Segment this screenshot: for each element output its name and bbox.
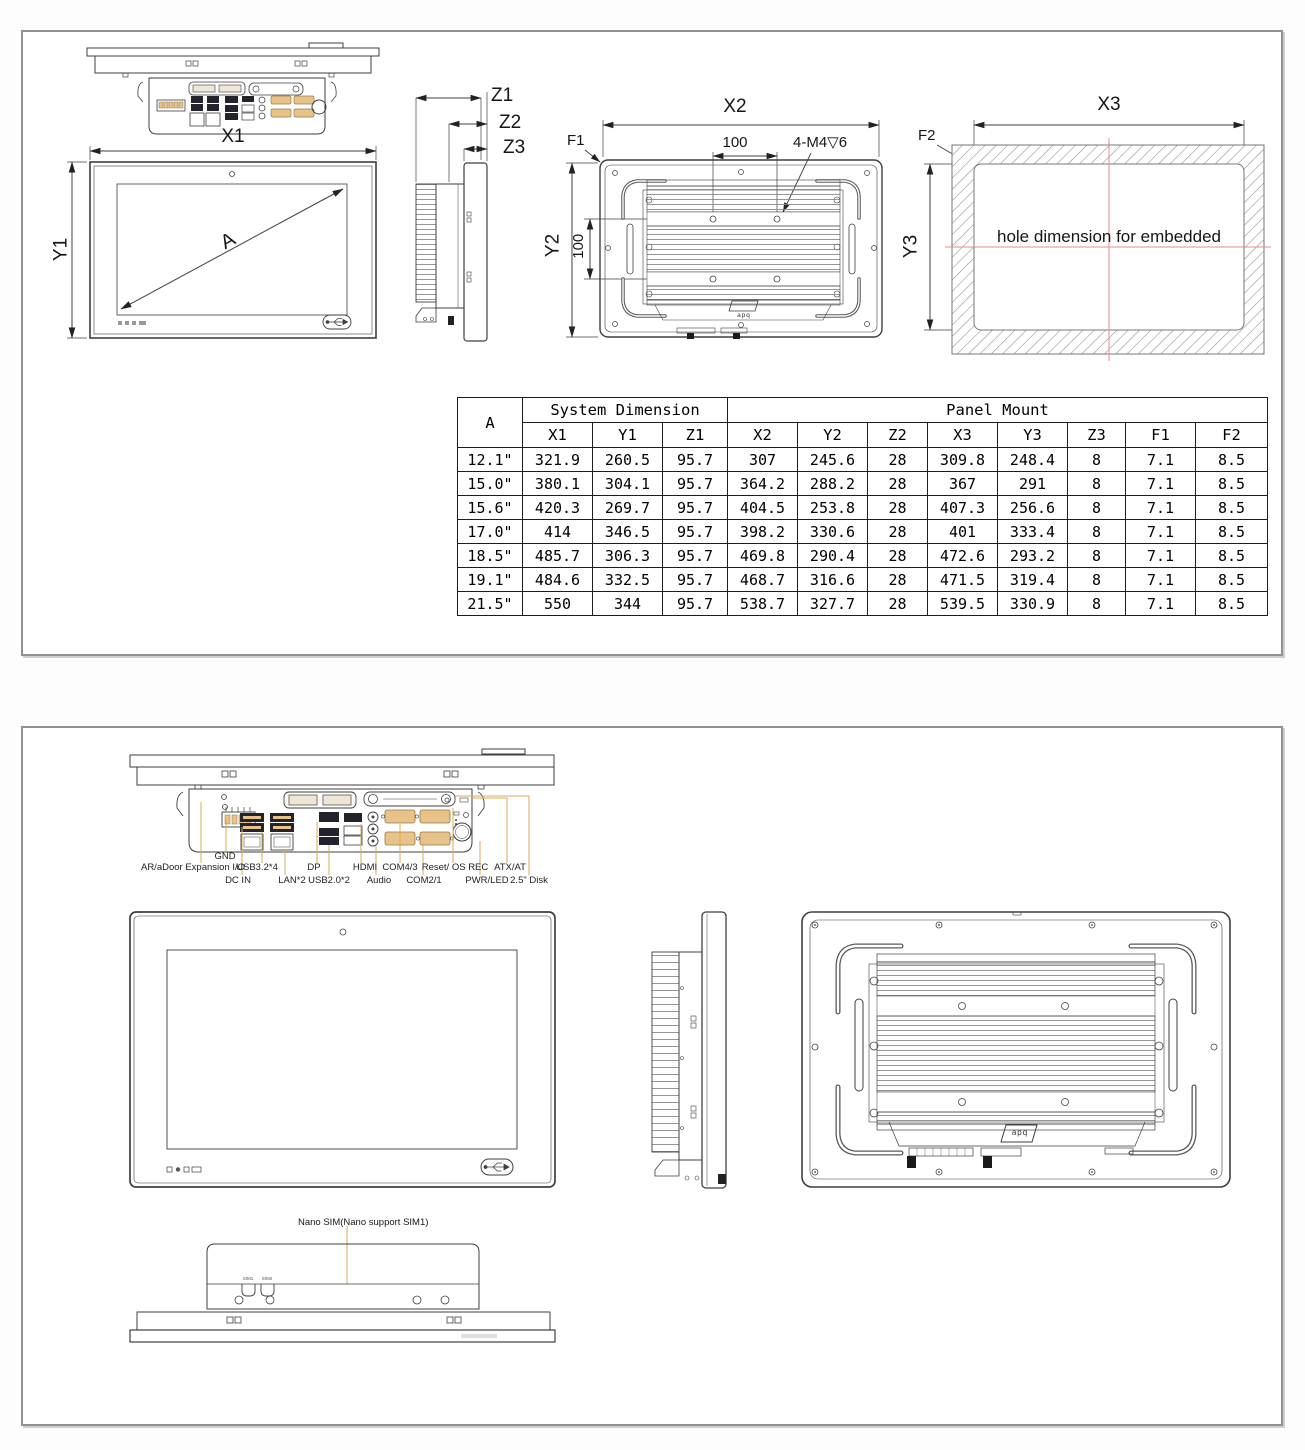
table-cell: 8 <box>1068 544 1126 568</box>
table-cell: 7.1 <box>1126 520 1196 544</box>
table-cell: 248.4 <box>998 448 1068 472</box>
table-cell: 95.7 <box>663 496 728 520</box>
col-x1: X1 <box>523 423 593 448</box>
table-cell: 95.7 <box>663 448 728 472</box>
io-label-gnd: GND <box>214 852 235 862</box>
table-cell: 485.7 <box>523 544 593 568</box>
table-cell: 364.2 <box>728 472 798 496</box>
table-cell: 333.4 <box>998 520 1068 544</box>
dimension-table-body: 12.1"321.9260.595.7307245.628309.8248.48… <box>458 448 1268 616</box>
table-cell: 28 <box>868 520 928 544</box>
table-cell: 28 <box>868 592 928 616</box>
rear-view-dimensioned <box>566 120 882 339</box>
table-cell: 321.9 <box>523 448 593 472</box>
sheet2-linework <box>23 728 1281 1424</box>
table-cell: 8 <box>1068 568 1126 592</box>
table-cell: 469.8 <box>728 544 798 568</box>
io-label-lan: LAN*2 <box>278 876 305 886</box>
io-label-com43: COM4/3 <box>382 863 417 873</box>
table-cell: 8 <box>1068 592 1126 616</box>
table-row: 12.1"321.9260.595.7307245.628309.8248.48… <box>458 448 1268 472</box>
table-cell: 332.5 <box>593 568 663 592</box>
table-cell: 17.0" <box>458 520 523 544</box>
table-cell: 316.6 <box>798 568 868 592</box>
table-cell: 306.3 <box>593 544 663 568</box>
table-cell: 468.7 <box>728 568 798 592</box>
dim-label-x2: X2 <box>710 97 760 118</box>
cutout-note: hole dimension for embedded <box>969 228 1249 247</box>
io-label-pwr: PWR/LED <box>465 876 508 886</box>
table-cell: 367 <box>928 472 998 496</box>
io-label-usb32: USB3.2*4 <box>236 863 278 873</box>
io-label-hdmi: HDMI <box>353 863 377 873</box>
usb-icon <box>484 1163 509 1171</box>
io-label-atx: ATX/AT <box>494 863 526 873</box>
table-cell: 256.6 <box>998 496 1068 520</box>
table-cell: 245.6 <box>798 448 868 472</box>
table-cell: 8.5 <box>1196 592 1268 616</box>
dim-label-vesa-h: 100 <box>710 135 760 152</box>
corner-note-f1: F1 <box>567 133 585 150</box>
dim-label-y2: Y2 <box>544 225 565 265</box>
io-label-dp: DP <box>307 863 320 873</box>
table-cell: 7.1 <box>1126 496 1196 520</box>
side-view-dimensioned <box>416 92 487 341</box>
table-cell: 288.2 <box>798 472 868 496</box>
nano-sim-note: Nano SIM(Nano support SIM1) <box>298 1218 428 1228</box>
table-cell: 8.5 <box>1196 568 1268 592</box>
table-cell: 15.6" <box>458 496 523 520</box>
table-cell: 28 <box>868 544 928 568</box>
usb-icon <box>326 319 347 326</box>
col-z2: Z2 <box>868 423 928 448</box>
table-cell: 95.7 <box>663 544 728 568</box>
table-cell: 7.1 <box>1126 592 1196 616</box>
table-cell: 380.1 <box>523 472 593 496</box>
table-cell: 8 <box>1068 520 1126 544</box>
table-cell: 7.1 <box>1126 472 1196 496</box>
table-cell: 21.5" <box>458 592 523 616</box>
table-cell: 290.4 <box>798 544 868 568</box>
table-header-system: System Dimension <box>523 398 728 423</box>
corner-note-f2: F2 <box>918 128 936 145</box>
table-cell: 346.5 <box>593 520 663 544</box>
table-cell: 95.7 <box>663 520 728 544</box>
table-cell: 472.6 <box>928 544 998 568</box>
table-row: 17.0"414346.595.7398.2330.628401333.487.… <box>458 520 1268 544</box>
drawing-page: { "brand_logo": "apq", "sheet1": { "fron… <box>0 0 1305 1450</box>
table-cell: 291 <box>998 472 1068 496</box>
table-cell: 8.5 <box>1196 472 1268 496</box>
col-f2: F2 <box>1196 423 1268 448</box>
table-cell: 95.7 <box>663 592 728 616</box>
table-cell: 330.6 <box>798 520 868 544</box>
col-z1: Z1 <box>663 423 728 448</box>
table-cell: 484.6 <box>523 568 593 592</box>
sim2-label: SIM2 <box>262 1277 273 1282</box>
io-label-audio: Audio <box>367 876 391 886</box>
sheet-dimensions: X1 Y1 A Z1 Z2 Z3 X2 100 4-M4▽6 F1 Y2 100… <box>21 30 1283 656</box>
table-cell: 7.1 <box>1126 568 1196 592</box>
table-cell: 398.2 <box>728 520 798 544</box>
col-y3: Y3 <box>998 423 1068 448</box>
table-cell: 539.5 <box>928 592 998 616</box>
io-label-com21: COM2/1 <box>406 876 441 886</box>
sheet-io-views: GND AR/aDoor Expansion I/O USB3.2*4 DP H… <box>21 726 1283 1426</box>
table-cell: 18.5" <box>458 544 523 568</box>
col-f1: F1 <box>1126 423 1196 448</box>
io-label-expansion: AR/aDoor Expansion I/O <box>141 863 245 873</box>
table-cell: 293.2 <box>998 544 1068 568</box>
table-cell: 327.7 <box>798 592 868 616</box>
dim-label-z1: Z1 <box>491 86 513 107</box>
table-row: 21.5"55034495.7538.7327.728539.5330.987.… <box>458 592 1268 616</box>
rear-view-large <box>802 912 1230 1187</box>
table-cell: 344 <box>593 592 663 616</box>
table-cell: 260.5 <box>593 448 663 472</box>
table-cell: 330.9 <box>998 592 1068 616</box>
sim1-label: SIM1 <box>243 1277 254 1282</box>
table-cell: 538.7 <box>728 592 798 616</box>
col-x2: X2 <box>728 423 798 448</box>
table-cell: 8.5 <box>1196 544 1268 568</box>
io-label-disk: 2.5" Disk <box>510 876 548 886</box>
table-cell: 8 <box>1068 496 1126 520</box>
table-cell: 15.0" <box>458 472 523 496</box>
table-cell: 12.1" <box>458 448 523 472</box>
table-row: 19.1"484.6332.595.7468.7316.628471.5319.… <box>458 568 1268 592</box>
table-row: 18.5"485.7306.395.7469.8290.428472.6293.… <box>458 544 1268 568</box>
dim-label-y1: Y1 <box>52 229 73 269</box>
table-cell: 28 <box>868 472 928 496</box>
table-cell: 407.3 <box>928 496 998 520</box>
table-cell: 550 <box>523 592 593 616</box>
table-header-panel: Panel Mount <box>728 398 1268 423</box>
bottom-view <box>130 1244 555 1342</box>
table-header-size: A <box>458 398 523 448</box>
side-view-large <box>652 912 726 1188</box>
dim-label-y3: Y3 <box>902 226 923 266</box>
col-y1: Y1 <box>593 423 663 448</box>
table-row: 15.6"420.3269.795.7404.5253.828407.3256.… <box>458 496 1268 520</box>
table-cell: 28 <box>868 496 928 520</box>
table-cell: 304.1 <box>593 472 663 496</box>
dimension-table: A System Dimension Panel Mount X1 Y1 Z1 … <box>457 397 1268 616</box>
table-cell: 28 <box>868 448 928 472</box>
table-cell: 404.5 <box>728 496 798 520</box>
table-cell: 7.1 <box>1126 448 1196 472</box>
col-x3: X3 <box>928 423 998 448</box>
dim-label-z2: Z2 <box>499 113 521 134</box>
io-label-usb20: USB2.0*2 <box>308 876 350 886</box>
dim-label-x3: X3 <box>1084 95 1134 116</box>
table-cell: 414 <box>523 520 593 544</box>
table-cell: 8 <box>1068 472 1126 496</box>
table-cell: 8.5 <box>1196 520 1268 544</box>
table-cell: 253.8 <box>798 496 868 520</box>
table-cell: 420.3 <box>523 496 593 520</box>
dim-label-x1: X1 <box>208 127 258 148</box>
top-io-view-small <box>87 43 379 134</box>
table-cell: 95.7 <box>663 568 728 592</box>
io-label-dcin: DC IN <box>225 876 251 886</box>
table-cell: 401 <box>928 520 998 544</box>
top-io-view-large <box>130 749 554 875</box>
table-cell: 8.5 <box>1196 448 1268 472</box>
table-cell: 8 <box>1068 448 1126 472</box>
screw-thread-note: 4-M4▽6 <box>793 135 847 152</box>
col-z3: Z3 <box>1068 423 1126 448</box>
table-cell: 8.5 <box>1196 496 1268 520</box>
table-cell: 7.1 <box>1126 544 1196 568</box>
dim-label-z3: Z3 <box>503 138 525 159</box>
col-y2: Y2 <box>798 423 868 448</box>
table-cell: 309.8 <box>928 448 998 472</box>
table-cell: 471.5 <box>928 568 998 592</box>
table-cell: 28 <box>868 568 928 592</box>
dim-label-vesa-v: 100 <box>571 226 588 266</box>
table-cell: 307 <box>728 448 798 472</box>
table-row: 15.0"380.1304.195.7364.2288.22836729187.… <box>458 472 1268 496</box>
brand-logo-small: apq <box>729 312 759 319</box>
table-cell: 19.1" <box>458 568 523 592</box>
table-cell: 319.4 <box>998 568 1068 592</box>
brand-logo-large: apq <box>1004 1129 1036 1138</box>
table-cell: 269.7 <box>593 496 663 520</box>
table-cell: 95.7 <box>663 472 728 496</box>
io-label-reset: Reset/ OS REC <box>422 863 489 873</box>
